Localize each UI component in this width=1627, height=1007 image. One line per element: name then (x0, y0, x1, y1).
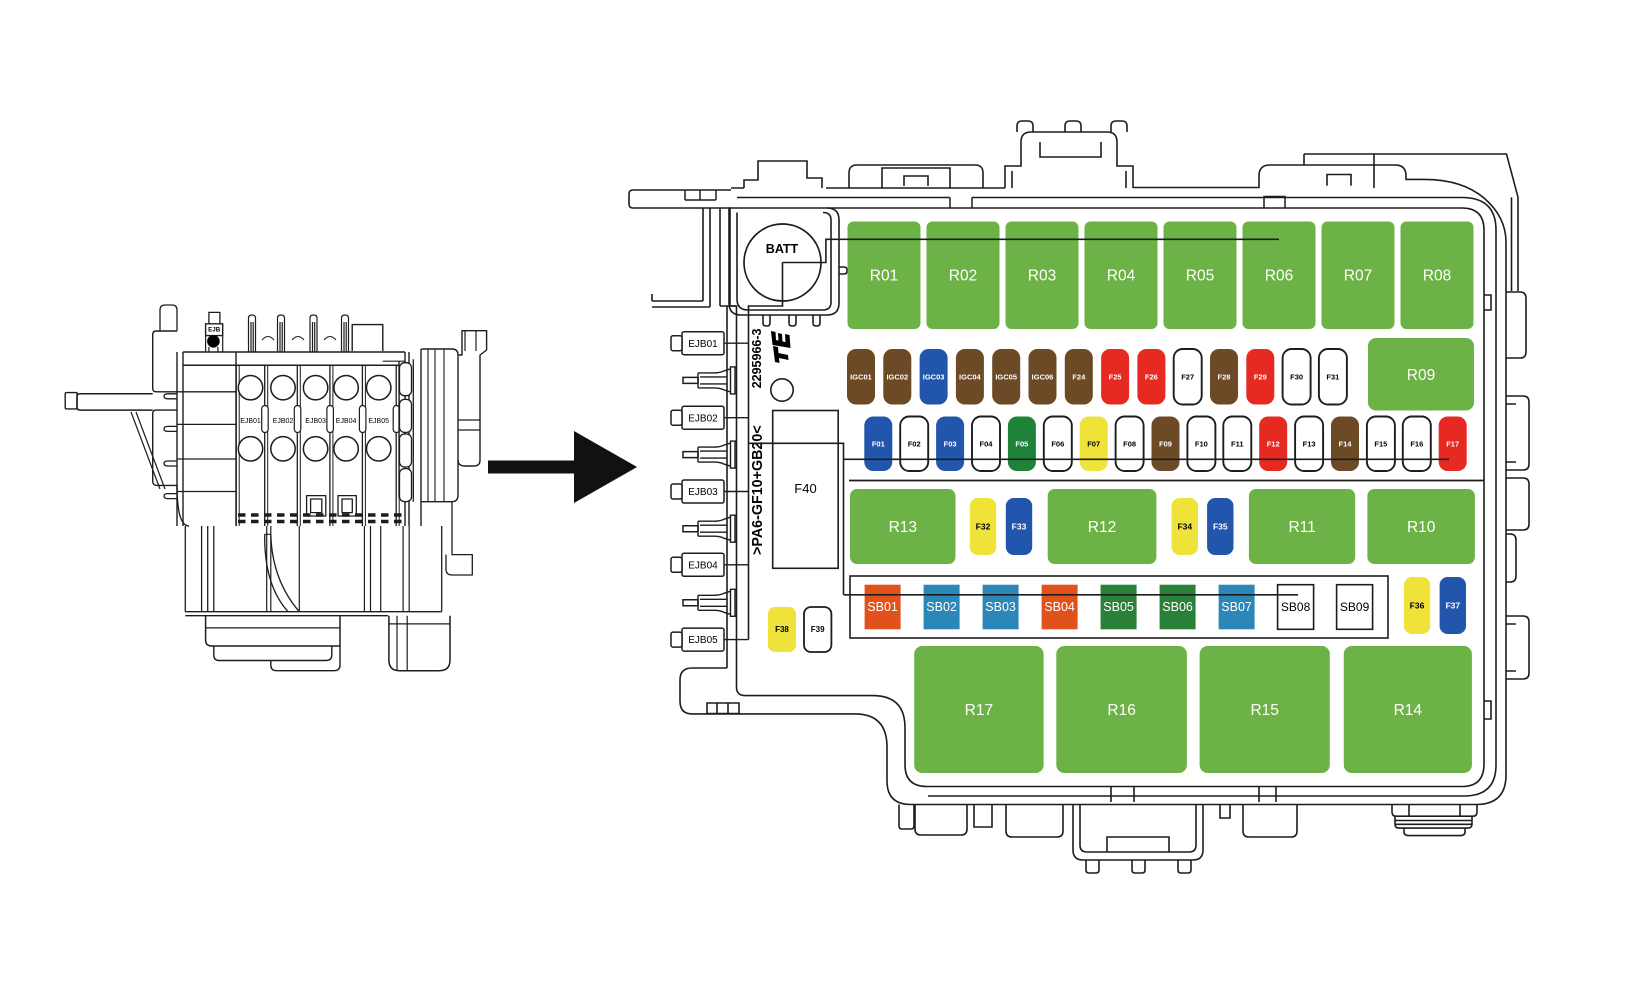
svg-text:R05: R05 (1186, 268, 1214, 285)
svg-text:F01: F01 (872, 440, 885, 449)
svg-text:F35: F35 (1213, 522, 1228, 532)
svg-text:IGC05: IGC05 (995, 373, 1017, 382)
svg-text:F28: F28 (1218, 373, 1231, 382)
svg-text:SB09: SB09 (1340, 600, 1370, 614)
svg-text:R11: R11 (1288, 519, 1315, 536)
svg-text:F31: F31 (1326, 373, 1339, 382)
svg-text:EJB04: EJB04 (336, 418, 357, 425)
svg-text:F13: F13 (1303, 440, 1316, 449)
svg-text:F09: F09 (1159, 440, 1172, 449)
svg-text:F06: F06 (1051, 440, 1064, 449)
svg-text:SB02: SB02 (926, 600, 957, 614)
svg-text:R13: R13 (889, 519, 917, 536)
svg-text:R02: R02 (949, 268, 977, 285)
svg-text:F36: F36 (1410, 601, 1425, 611)
svg-text:IGC02: IGC02 (886, 373, 908, 382)
svg-text:F34: F34 (1177, 522, 1192, 532)
svg-text:F30: F30 (1290, 373, 1303, 382)
svg-text:>PA6-GF10+GB20<: >PA6-GF10+GB20< (750, 425, 766, 555)
svg-text:R08: R08 (1423, 268, 1451, 285)
svg-text:IGC06: IGC06 (1032, 373, 1054, 382)
svg-text:F40: F40 (794, 481, 816, 496)
svg-text:F11: F11 (1231, 440, 1244, 449)
svg-text:EJB04: EJB04 (688, 560, 718, 571)
svg-text:EJB01: EJB01 (240, 418, 261, 425)
svg-text:F37: F37 (1445, 601, 1460, 611)
svg-text:F32: F32 (976, 522, 991, 532)
svg-text:F24: F24 (1072, 373, 1086, 382)
svg-text:F25: F25 (1109, 373, 1122, 382)
svg-text:F14: F14 (1339, 440, 1353, 449)
svg-text:R17: R17 (965, 702, 993, 719)
svg-text:R14: R14 (1394, 702, 1423, 719)
svg-text:EJB05: EJB05 (368, 418, 389, 425)
svg-text:EJB02: EJB02 (688, 413, 718, 424)
svg-text:SB08: SB08 (1281, 600, 1311, 614)
svg-text:F15: F15 (1374, 440, 1387, 449)
svg-text:F02: F02 (908, 440, 921, 449)
svg-text:F39: F39 (811, 625, 825, 634)
svg-text:F16: F16 (1410, 440, 1423, 449)
svg-text:EJB03: EJB03 (688, 487, 718, 498)
svg-text:SB04: SB04 (1044, 600, 1075, 614)
svg-text:F04: F04 (980, 440, 994, 449)
svg-text:F05: F05 (1015, 440, 1028, 449)
svg-text:R10: R10 (1407, 519, 1436, 536)
svg-text:IGC03: IGC03 (923, 373, 945, 382)
svg-text:R06: R06 (1265, 268, 1293, 285)
svg-text:EJB02: EJB02 (273, 418, 294, 425)
svg-text:F12: F12 (1267, 440, 1280, 449)
svg-text:F29: F29 (1254, 373, 1267, 382)
svg-text:R16: R16 (1107, 702, 1135, 719)
svg-text:F03: F03 (944, 440, 957, 449)
svg-text:R04: R04 (1107, 268, 1136, 285)
svg-text:R09: R09 (1407, 367, 1435, 384)
svg-text:F08: F08 (1123, 440, 1136, 449)
svg-text:R03: R03 (1028, 268, 1056, 285)
svg-text:EJB01: EJB01 (688, 339, 718, 350)
svg-text:EJB05: EJB05 (688, 635, 718, 646)
svg-text:F07: F07 (1087, 440, 1100, 449)
svg-text:R01: R01 (870, 268, 898, 285)
svg-text:R07: R07 (1344, 268, 1372, 285)
svg-text:F26: F26 (1145, 373, 1158, 382)
svg-text:SB03: SB03 (985, 600, 1016, 614)
svg-text:SB01: SB01 (867, 600, 898, 614)
svg-text:EJB: EJB (208, 327, 221, 334)
svg-text:F17: F17 (1446, 440, 1459, 449)
svg-text:BATT: BATT (766, 242, 799, 256)
svg-text:2295966-3: 2295966-3 (750, 328, 764, 388)
svg-text:F27: F27 (1181, 373, 1194, 382)
svg-text:F38: F38 (775, 625, 789, 634)
svg-text:EJB03: EJB03 (305, 418, 326, 425)
svg-text:F10: F10 (1195, 440, 1208, 449)
svg-text:SB06: SB06 (1162, 600, 1193, 614)
svg-text:IGC01: IGC01 (850, 373, 872, 382)
svg-text:IGC04: IGC04 (959, 373, 982, 382)
svg-text:R15: R15 (1250, 702, 1278, 719)
svg-text:SB05: SB05 (1103, 600, 1134, 614)
svg-text:F33: F33 (1012, 522, 1027, 532)
svg-text:R12: R12 (1088, 519, 1116, 536)
svg-text:SB07: SB07 (1221, 600, 1252, 614)
